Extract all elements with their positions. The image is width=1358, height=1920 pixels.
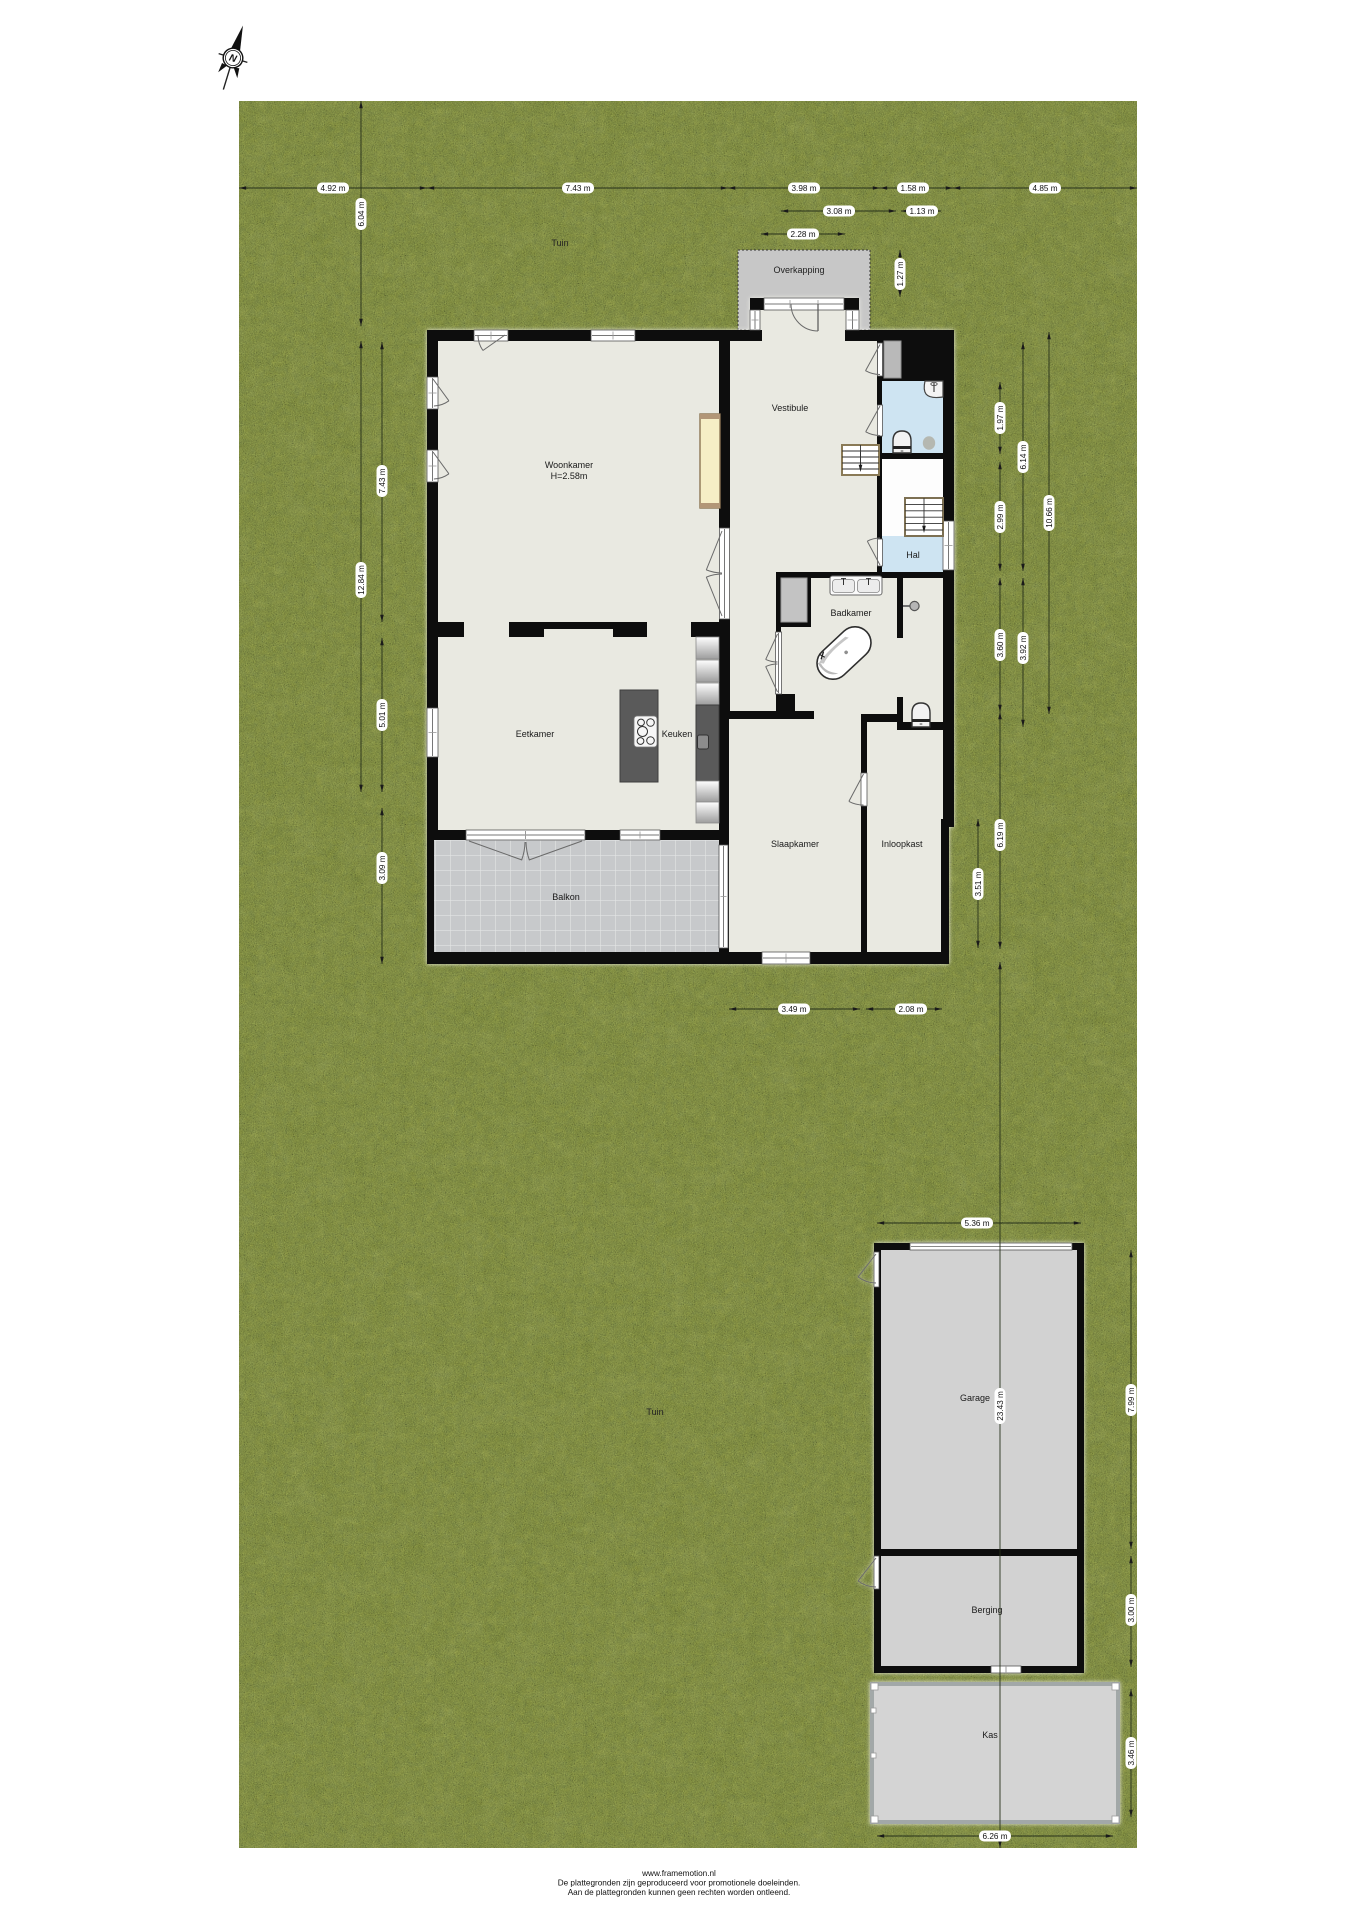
svg-text:12.84 m: 12.84 m — [357, 565, 366, 595]
svg-text:Inloopkast: Inloopkast — [881, 839, 923, 849]
svg-text:3.98 m: 3.98 m — [791, 184, 816, 193]
svg-text:5.01 m: 5.01 m — [378, 702, 387, 727]
svg-text:H=2.58m: H=2.58m — [551, 471, 588, 481]
svg-text:6.04 m: 6.04 m — [357, 201, 366, 226]
svg-text:10.66 m: 10.66 m — [1045, 498, 1054, 528]
svg-text:3.92 m: 3.92 m — [1019, 635, 1028, 660]
svg-text:7.43 m: 7.43 m — [565, 184, 590, 193]
svg-text:2.28 m: 2.28 m — [790, 230, 815, 239]
svg-text:3.51 m: 3.51 m — [974, 871, 983, 896]
svg-text:Keuken: Keuken — [662, 729, 693, 739]
svg-text:Slaapkamer: Slaapkamer — [771, 839, 819, 849]
svg-text:1.97 m: 1.97 m — [996, 405, 1005, 430]
svg-text:7.43 m: 7.43 m — [378, 468, 387, 493]
svg-text:6.14 m: 6.14 m — [1019, 444, 1028, 469]
svg-text:Kas: Kas — [982, 1730, 998, 1740]
svg-text:1.27 m: 1.27 m — [896, 261, 905, 286]
svg-text:Berging: Berging — [971, 1605, 1002, 1615]
svg-text:Eetkamer: Eetkamer — [516, 729, 555, 739]
svg-text:4.85 m: 4.85 m — [1032, 184, 1057, 193]
svg-text:Vestibule: Vestibule — [772, 403, 809, 413]
svg-text:4.92 m: 4.92 m — [320, 184, 345, 193]
svg-text:3.00 m: 3.00 m — [1127, 1597, 1136, 1622]
svg-text:De plattegronden zijn geproduc: De plattegronden zijn geproduceerd voor … — [558, 1879, 801, 1888]
svg-text:Overkapping: Overkapping — [773, 265, 824, 275]
svg-text:3.49 m: 3.49 m — [781, 1005, 806, 1014]
svg-text:1.13 m: 1.13 m — [909, 207, 934, 216]
svg-text:2.08 m: 2.08 m — [898, 1005, 923, 1014]
svg-text:Badkamer: Badkamer — [830, 608, 871, 618]
svg-text:Balkon: Balkon — [552, 892, 580, 902]
svg-text:23.43 m: 23.43 m — [996, 1391, 1005, 1421]
svg-text:Aan de plattegronden kunnen ge: Aan de plattegronden kunnen geen rechten… — [568, 1888, 791, 1897]
svg-text:Tuin: Tuin — [551, 238, 568, 248]
svg-text:3.46 m: 3.46 m — [1127, 1740, 1136, 1765]
svg-text:7.99 m: 7.99 m — [1127, 1387, 1136, 1412]
svg-text:www.framemotion.nl: www.framemotion.nl — [641, 1869, 716, 1878]
svg-text:Woonkamer: Woonkamer — [545, 460, 593, 470]
svg-text:Tuin: Tuin — [646, 1407, 663, 1417]
svg-text:3.08 m: 3.08 m — [826, 207, 851, 216]
svg-text:Hal: Hal — [906, 550, 920, 560]
svg-text:2.99 m: 2.99 m — [996, 504, 1005, 529]
svg-text:6.19 m: 6.19 m — [996, 822, 1005, 847]
svg-text:3.60 m: 3.60 m — [996, 632, 1005, 657]
svg-text:6.26 m: 6.26 m — [982, 1832, 1007, 1841]
svg-text:1.58 m: 1.58 m — [900, 184, 925, 193]
svg-text:3.09 m: 3.09 m — [378, 855, 387, 880]
svg-text:5.36 m: 5.36 m — [964, 1219, 989, 1228]
svg-text:Garage: Garage — [960, 1393, 990, 1403]
